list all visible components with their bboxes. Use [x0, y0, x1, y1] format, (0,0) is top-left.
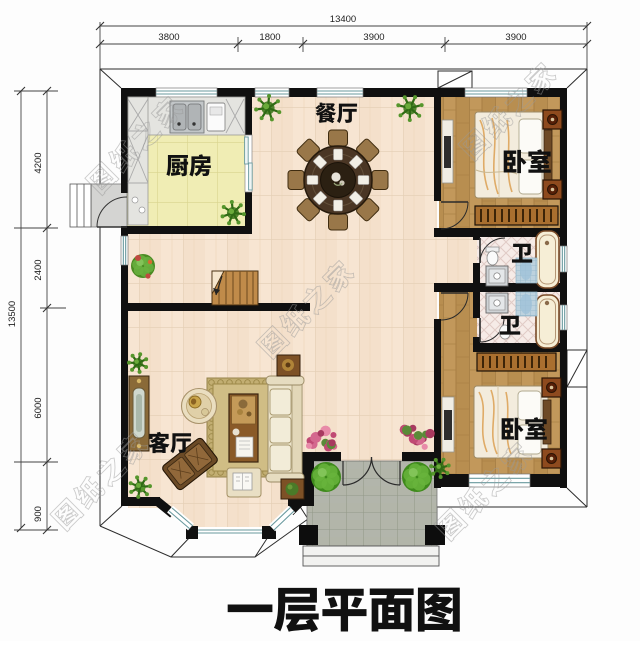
- svg-text:3800: 3800: [158, 32, 179, 43]
- svg-text:6000: 6000: [33, 397, 44, 418]
- svg-text:3900: 3900: [505, 32, 526, 43]
- svg-text:13400: 13400: [330, 14, 356, 25]
- svg-text:4200: 4200: [33, 152, 44, 173]
- svg-text:900: 900: [33, 506, 44, 522]
- svg-text:13500: 13500: [7, 301, 18, 327]
- svg-text:3900: 3900: [363, 32, 384, 43]
- svg-text:1800: 1800: [259, 32, 280, 43]
- svg-text:2400: 2400: [33, 259, 44, 280]
